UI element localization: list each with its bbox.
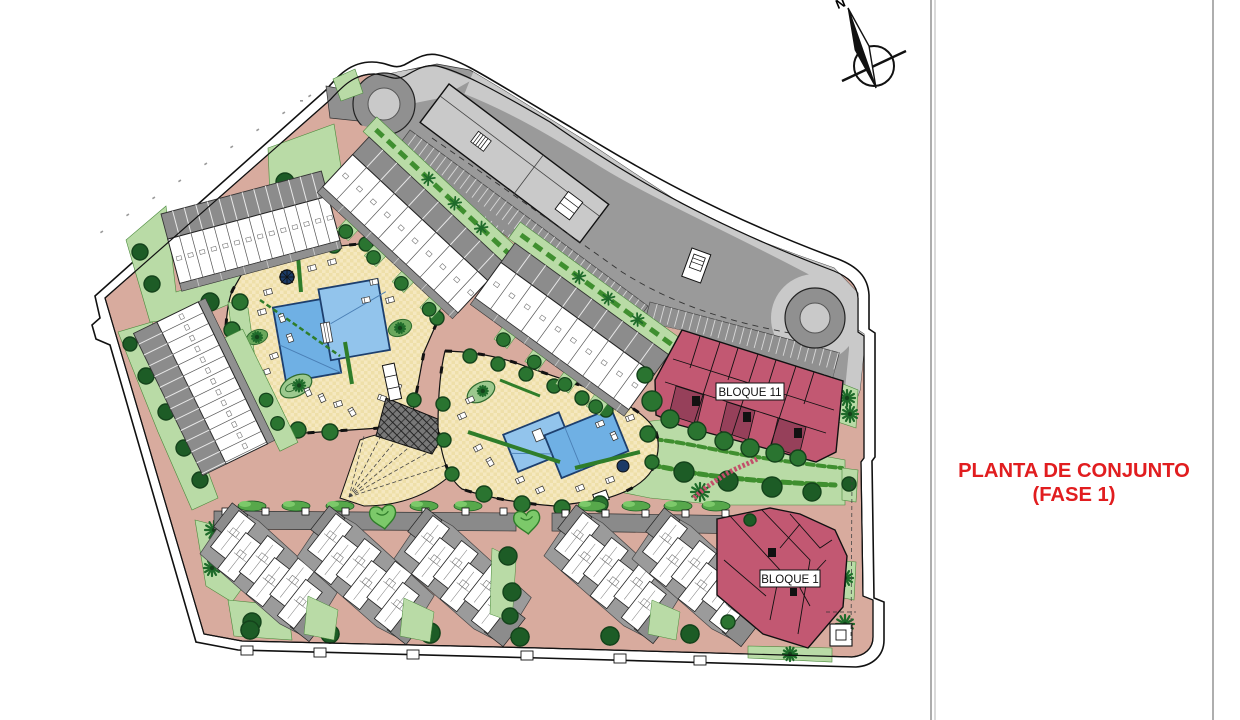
svg-text:PLANTA DE CONJUNTO: PLANTA DE CONJUNTO (958, 460, 1190, 482)
svg-text:BLOQUE 11: BLOQUE 11 (718, 387, 781, 399)
svg-text:BLOQUE 1: BLOQUE 1 (761, 574, 819, 586)
svg-text:(FASE 1): (FASE 1) (1032, 484, 1115, 506)
svg-text:N: N (833, 0, 847, 12)
